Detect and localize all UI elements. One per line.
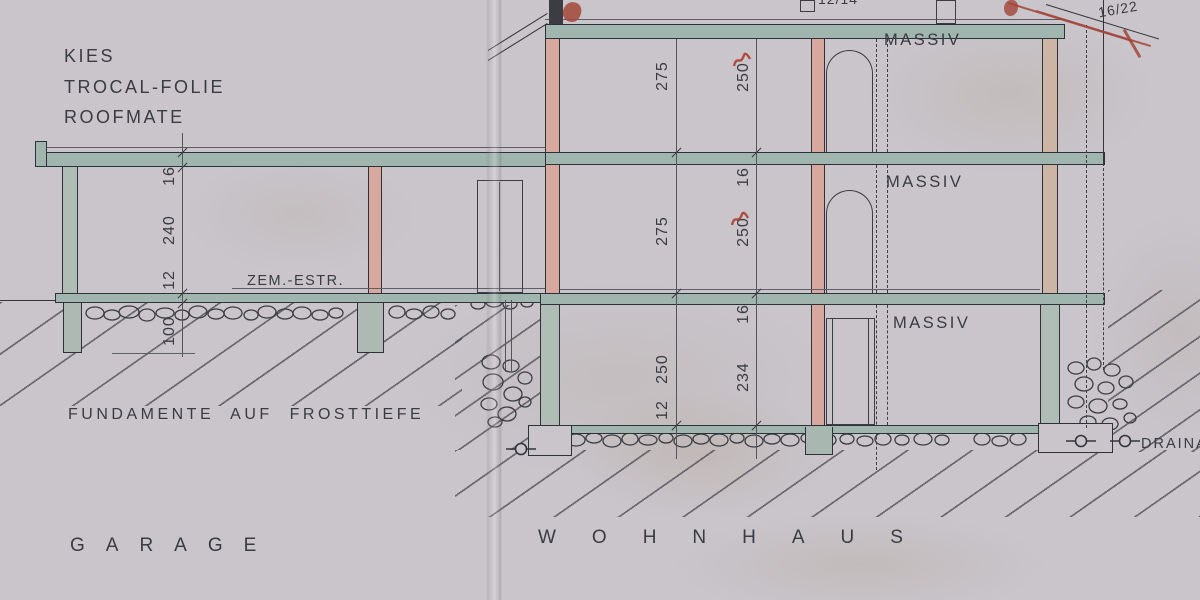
roof-post-mid [800,0,815,12]
zone-label-wohnhaus: WOHNHAUS [538,527,939,549]
eg-arched-door [826,190,873,293]
kg-dim-floor: 12 [654,378,672,442]
excavation-wall-line-2 [511,300,512,372]
eg-interior-wall [811,165,825,293]
ground-line-left [0,300,62,301]
massiv-label-og: MASSIV [884,31,961,50]
og-left-wall [545,39,560,152]
house-dim-line-left [676,39,677,459]
roof-material-trocal: TROCAL-FOLIE [64,77,225,98]
blueprint-canvas: 16 240 12 100 12/14 16/22 MASSIV MASSIV … [0,0,1200,600]
kg-dim-slab: 16 [735,282,753,346]
garage-left-wall-footing [63,300,82,353]
massiv-label-eg: MASSIV [886,173,963,192]
eg-dashed-line-1 [876,165,877,293]
stone-row-garage [85,303,347,323]
excavation-wall-line-1 [505,300,506,372]
eg-floor-slab [540,293,1105,305]
drain-pipe-symbol-mid [1066,433,1096,449]
kg-dashed-line-2 [887,305,888,425]
og-dashed-line-1 [876,39,877,152]
timber-label-mid: 12/14 [818,0,858,7]
garage-column-footing [357,300,384,353]
eg-left-wall [545,165,560,293]
massiv-label-kg: MASSIV [893,314,970,333]
garage-dim-foundation: 100 [161,299,179,363]
foundation-note: FUNDAMENTE AUF FROSTTIEFE [68,406,424,424]
kg-floor-slab [545,425,1060,434]
og-floor-slab [545,152,1105,165]
stone-cluster-left [473,352,535,430]
garage-left-wall [62,167,78,300]
garage-roof-parapet [35,141,47,167]
roof-post-left [549,0,563,24]
garage-dim-foundation-base [112,353,195,354]
kg-left-wall [540,305,560,425]
garage-column [368,167,382,293]
og-dim-left: 275 [654,44,672,108]
drain-pipe-symbol-left [506,441,536,457]
right-shaft-dashed-line-1 [1086,25,1087,428]
roof-material-roofmate: ROOFMATE [64,107,185,128]
red-correction-mark-eg [729,209,751,229]
kg-right-wall [1040,305,1060,425]
og-right-wall [1042,39,1058,152]
kg-dim-right: 234 [735,345,753,409]
red-stamp-mark-top-right [1004,0,1018,16]
og-interior-wall [811,39,825,152]
kg-foundation-mid [805,427,833,455]
right-shaft-solid-line [1103,0,1104,163]
house-top-slab [545,24,1065,39]
house-roof-layer-line [545,19,1065,20]
roof-material-kies: KIES [64,46,115,67]
og-arched-door [826,50,873,152]
kg-dashed-line-1 [876,305,877,470]
timber-label-right: 16/22 [1097,0,1139,20]
red-stamp-mark-ridge [561,0,583,24]
paper-crease [486,0,502,600]
stone-row-garage-right [388,303,460,321]
garage-floor-slab [55,293,547,303]
ground-hatch-bottom [455,450,1200,517]
eg-dim-left: 275 [654,199,672,263]
drainage-label: DRAINA [1141,436,1200,452]
house-dim-line-right [756,39,757,459]
screed-label: ZEM.-ESTR. [247,273,344,289]
eg-right-wall [1042,165,1058,293]
right-shaft-dashed-line-2 [1103,163,1104,370]
roof-post-right [936,0,956,24]
garage-roof-slab [35,152,547,167]
zone-label-garage: GARAGE [70,535,277,557]
kg-interior-wall [811,305,825,425]
eg-screed-line [560,289,1040,290]
drain-pipe-symbol-right [1110,433,1140,449]
red-correction-mark-og [731,50,753,70]
og-dashed-line-2 [887,39,888,152]
garage-roof-layer-line [35,147,547,148]
kg-door-inner-frame [832,318,869,425]
